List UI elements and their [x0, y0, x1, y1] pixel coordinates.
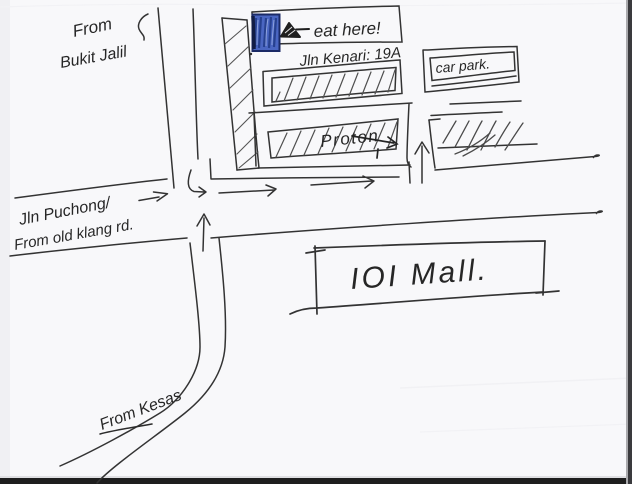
svg-text:eat here!: eat here! — [313, 18, 381, 41]
